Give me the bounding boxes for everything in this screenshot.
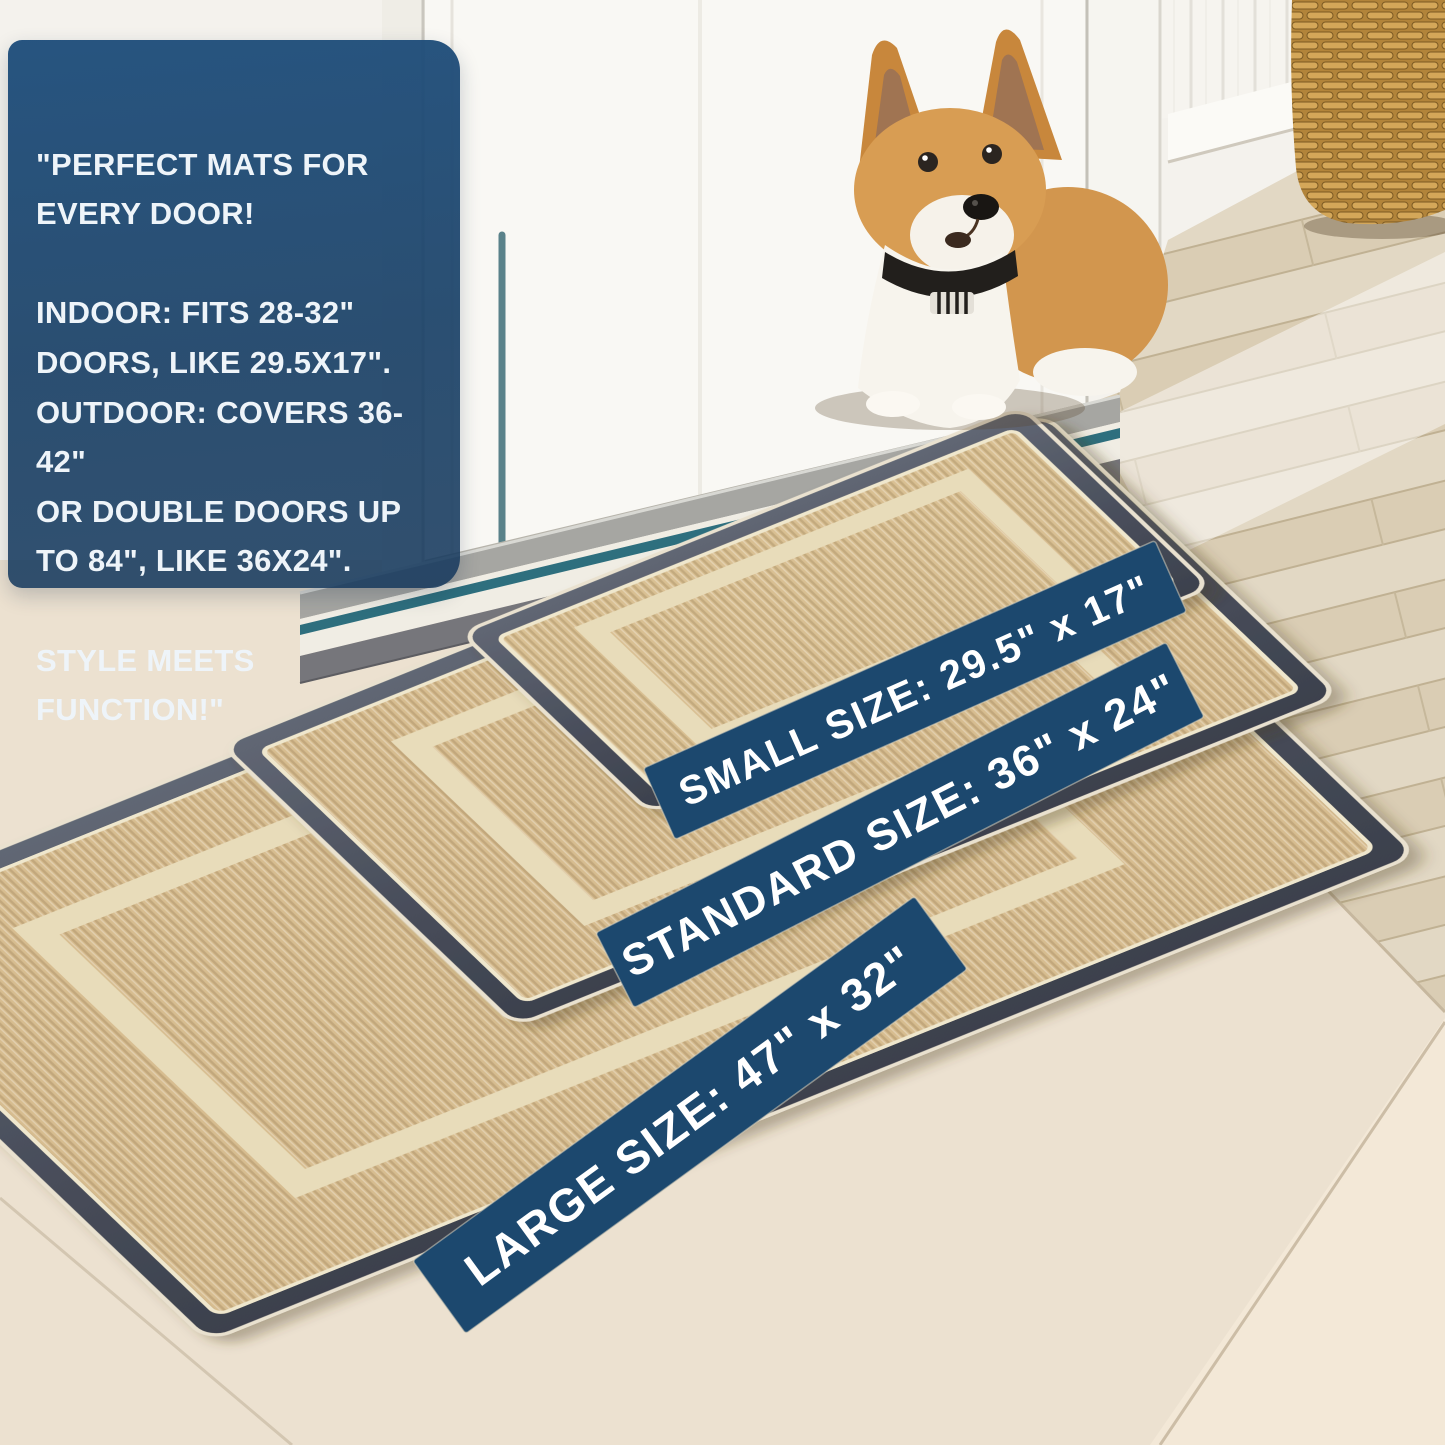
dog-paw xyxy=(952,394,1006,420)
wicker-basket-illustration xyxy=(1291,0,1445,239)
dog-nose xyxy=(963,194,999,220)
dog-paw xyxy=(866,391,920,417)
dog-left-eye xyxy=(918,152,938,172)
dog-hind-paw xyxy=(1033,348,1137,396)
info-box: "PERFECT MATS FOR EVERY DOOR! INDOOR: FI… xyxy=(8,40,460,588)
product-image: SMALL SIZE: 29.5" x 17" STANDARD SIZE: 3… xyxy=(0,0,1445,1445)
dog-open-mouth xyxy=(945,232,971,248)
dog-right-eye xyxy=(982,144,1002,164)
